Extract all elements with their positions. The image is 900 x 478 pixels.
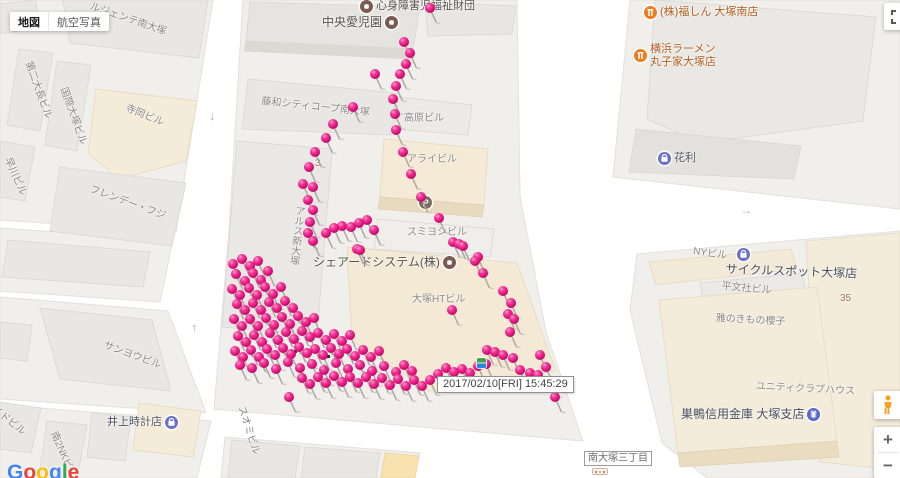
fullscreen-button[interactable] bbox=[884, 3, 900, 30]
google-logo-letter: o bbox=[36, 461, 49, 478]
map-pin[interactable] bbox=[434, 213, 450, 234]
fullscreen-icon bbox=[891, 10, 900, 24]
map-pin[interactable] bbox=[304, 162, 320, 183]
map-pin[interactable] bbox=[398, 147, 414, 168]
google-logo-letter: e bbox=[68, 461, 80, 478]
google-logo-letter: o bbox=[23, 461, 36, 478]
tooltip-mini-icon bbox=[477, 358, 486, 368]
pegman-icon bbox=[882, 395, 894, 415]
map-pin[interactable] bbox=[369, 225, 385, 246]
map-pin[interactable] bbox=[284, 392, 300, 413]
map-pin[interactable] bbox=[550, 392, 566, 413]
map-type-satellite-button[interactable]: 航空写真 bbox=[49, 12, 109, 31]
map-pin[interactable] bbox=[348, 102, 364, 123]
map-pin[interactable] bbox=[271, 364, 287, 385]
map-pins-layer bbox=[0, 0, 900, 478]
map-pin[interactable] bbox=[308, 236, 324, 257]
map-pin[interactable] bbox=[478, 268, 494, 289]
pin-timestamp-tooltip: 2017/02/10[FRI] 15:45:29 bbox=[437, 376, 574, 393]
map-type-control: 地図 航空写真 bbox=[10, 12, 109, 31]
google-logo-letter: g bbox=[49, 461, 62, 478]
traffic-signal-icon bbox=[592, 468, 608, 475]
map-pin[interactable] bbox=[425, 3, 441, 24]
map-pin[interactable] bbox=[406, 169, 422, 190]
map-pin[interactable] bbox=[321, 133, 337, 154]
google-map-canvas[interactable]: ルジェンテ南大塚第二大長ビル国際大塚ビル寺岡ビル早川ビルフレンデー・フジ中央愛児… bbox=[0, 0, 900, 478]
map-pin[interactable] bbox=[370, 69, 386, 90]
google-logo-letter: G bbox=[7, 461, 23, 478]
map-type-map-button[interactable]: 地図 bbox=[10, 12, 48, 31]
zoom-in-button[interactable]: + bbox=[874, 427, 900, 452]
zoom-control: + − bbox=[874, 427, 900, 478]
pegman-button[interactable] bbox=[874, 391, 900, 419]
district-label: 南大塚三丁目 bbox=[584, 451, 652, 466]
zoom-out-button[interactable]: − bbox=[874, 453, 900, 478]
map-pin[interactable] bbox=[447, 305, 463, 326]
google-logo[interactable]: Google bbox=[7, 461, 79, 478]
map-pin[interactable] bbox=[416, 192, 432, 213]
map-pin[interactable] bbox=[391, 125, 407, 146]
